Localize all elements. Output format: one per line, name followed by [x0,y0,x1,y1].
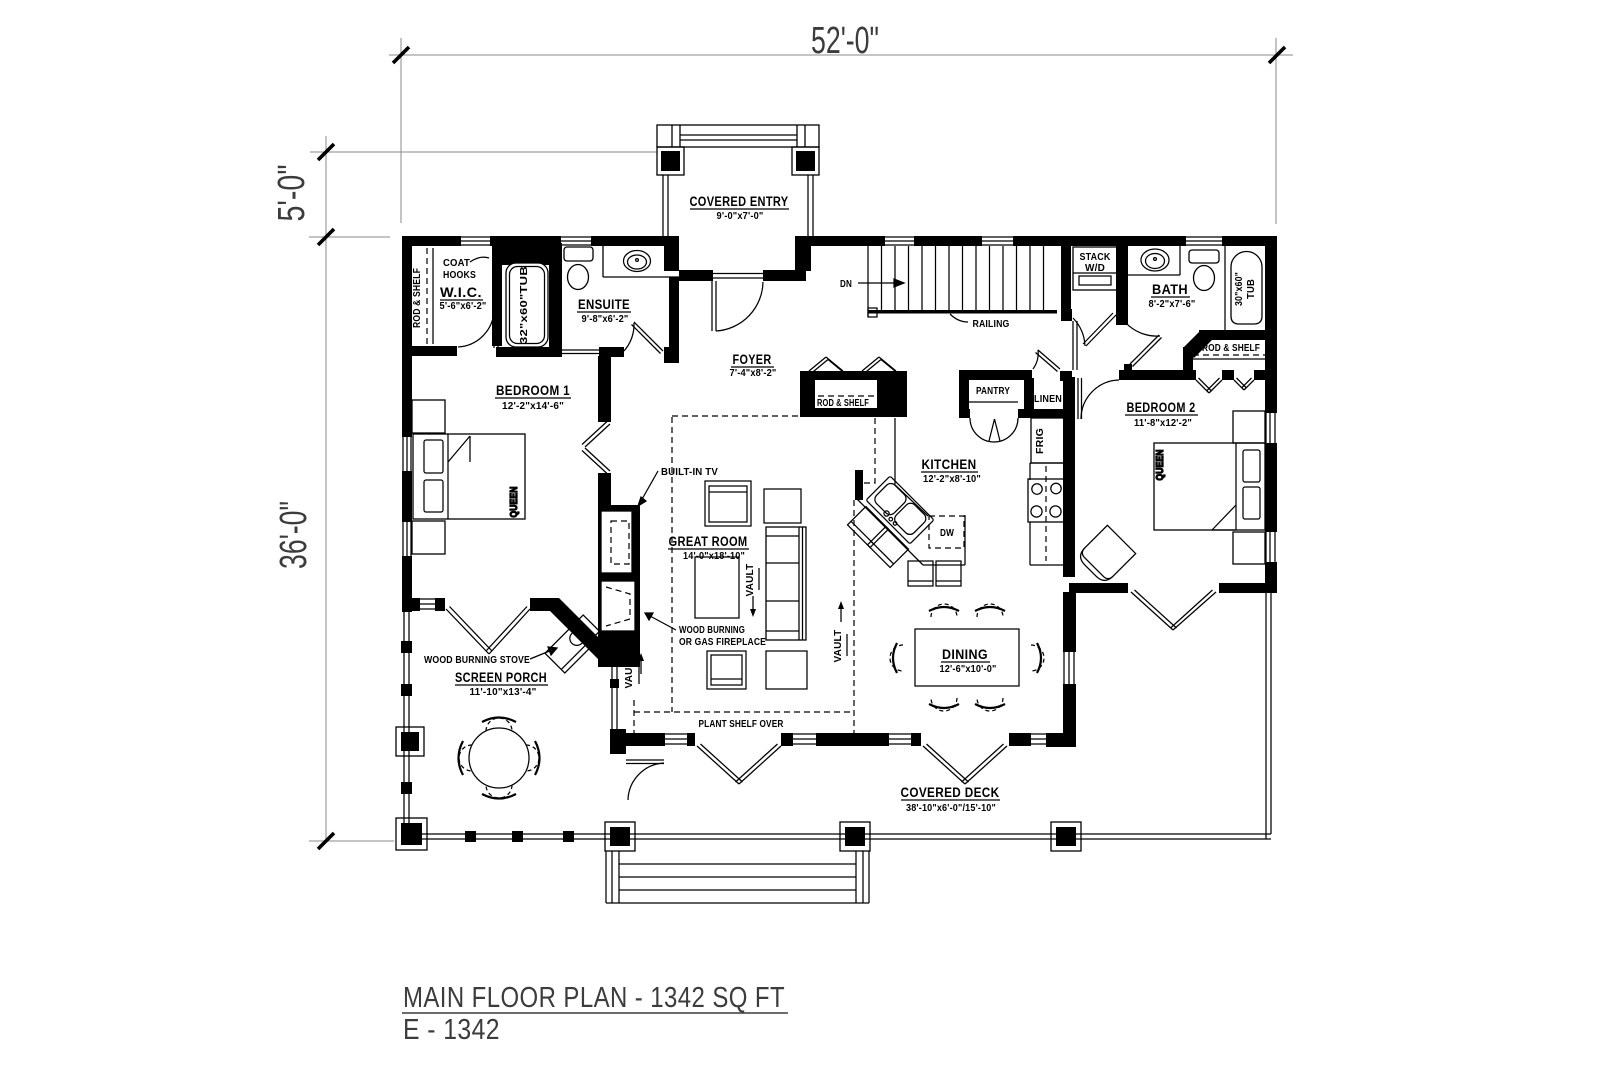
svg-text:COVERED DECK: COVERED DECK [901,785,1000,800]
svg-text:9'-0"x7'-0": 9'-0"x7'-0" [717,210,764,222]
svg-text:BUILT-IN TV: BUILT-IN TV [661,466,718,478]
svg-text:30"x60": 30"x60" [1233,272,1245,306]
svg-text:VAULT: VAULT [832,629,844,662]
svg-text:BATH: BATH [1152,282,1188,297]
svg-text:QUEEN: QUEEN [508,487,520,518]
svg-text:MAIN FLOOR PLAN - 1342 SQ FT: MAIN FLOOR PLAN - 1342 SQ FT [403,982,785,1014]
svg-text:ROD & SHELF: ROD & SHELF [817,397,869,409]
svg-text:FRIG: FRIG [1034,428,1046,454]
svg-text:BEDROOM 1: BEDROOM 1 [496,383,570,398]
svg-text:DW: DW [940,527,954,539]
svg-text:32"x60"TUB: 32"x60"TUB [518,266,530,344]
svg-text:LINEN: LINEN [1034,393,1062,405]
svg-text:FOYER: FOYER [733,352,772,367]
svg-text:5'-0": 5'-0" [271,165,313,222]
svg-text:12'-2"x8'-10": 12'-2"x8'-10" [923,473,981,485]
svg-text:36'-0": 36'-0" [273,501,315,569]
svg-text:14'-0"x18'-10": 14'-0"x18'-10" [683,550,745,562]
svg-text:WOOD BURNING STOVE: WOOD BURNING STOVE [424,654,530,666]
svg-text:11'-8"x12'-2": 11'-8"x12'-2" [1134,417,1192,429]
svg-text:12'-2"x14'-6": 12'-2"x14'-6" [502,400,564,412]
svg-text:ENSUITE: ENSUITE [578,297,630,312]
svg-text:W/D: W/D [1085,262,1105,274]
svg-text:TUB: TUB [1245,279,1257,299]
svg-text:9'-8"x6'-2": 9'-8"x6'-2" [582,313,629,325]
svg-text:RAILING: RAILING [973,318,1010,330]
svg-text:DINING: DINING [942,647,988,662]
svg-text:SCREEN PORCH: SCREEN PORCH [455,670,547,685]
svg-text:WOOD BURNING: WOOD BURNING [679,624,745,636]
svg-text:PANTRY: PANTRY [976,385,1010,397]
svg-text:7'-4"x8'-2": 7'-4"x8'-2" [730,367,777,379]
svg-text:HOOKS: HOOKS [443,269,476,281]
svg-text:PLANT SHELF OVER: PLANT SHELF OVER [699,718,784,730]
svg-text:52'-0": 52'-0" [811,20,879,62]
svg-text:OR GAS FIREPLACE: OR GAS FIREPLACE [679,636,766,648]
svg-text:8'-2"x7'-6": 8'-2"x7'-6" [1149,298,1196,310]
svg-text:VAULT: VAULT [623,655,635,688]
svg-text:VAULT: VAULT [744,563,756,596]
svg-text:QUEEN: QUEEN [1154,450,1166,481]
svg-text:COAT: COAT [443,257,470,269]
svg-text:E - 1342: E - 1342 [403,1014,500,1046]
svg-text:5'-6"x6'-2": 5'-6"x6'-2" [440,300,487,312]
svg-text:W.I.C.: W.I.C. [440,285,482,300]
svg-text:KITCHEN: KITCHEN [922,457,977,472]
svg-text:12'-6"x10'-0": 12'-6"x10'-0" [940,663,997,675]
svg-text:38'-10"x6'-0"/15'-10": 38'-10"x6'-0"/15'-10" [906,802,996,814]
svg-text:ROD & SHELF: ROD & SHELF [1202,342,1260,354]
svg-text:DN: DN [840,278,852,290]
svg-text:COVERED ENTRY: COVERED ENTRY [690,194,789,209]
svg-text:BEDROOM 2: BEDROOM 2 [1127,400,1196,415]
svg-text:11'-10"x13'-4": 11'-10"x13'-4" [470,686,537,698]
svg-text:ROD & SHELF: ROD & SHELF [411,268,423,328]
svg-text:GREAT ROOM: GREAT ROOM [669,534,748,549]
